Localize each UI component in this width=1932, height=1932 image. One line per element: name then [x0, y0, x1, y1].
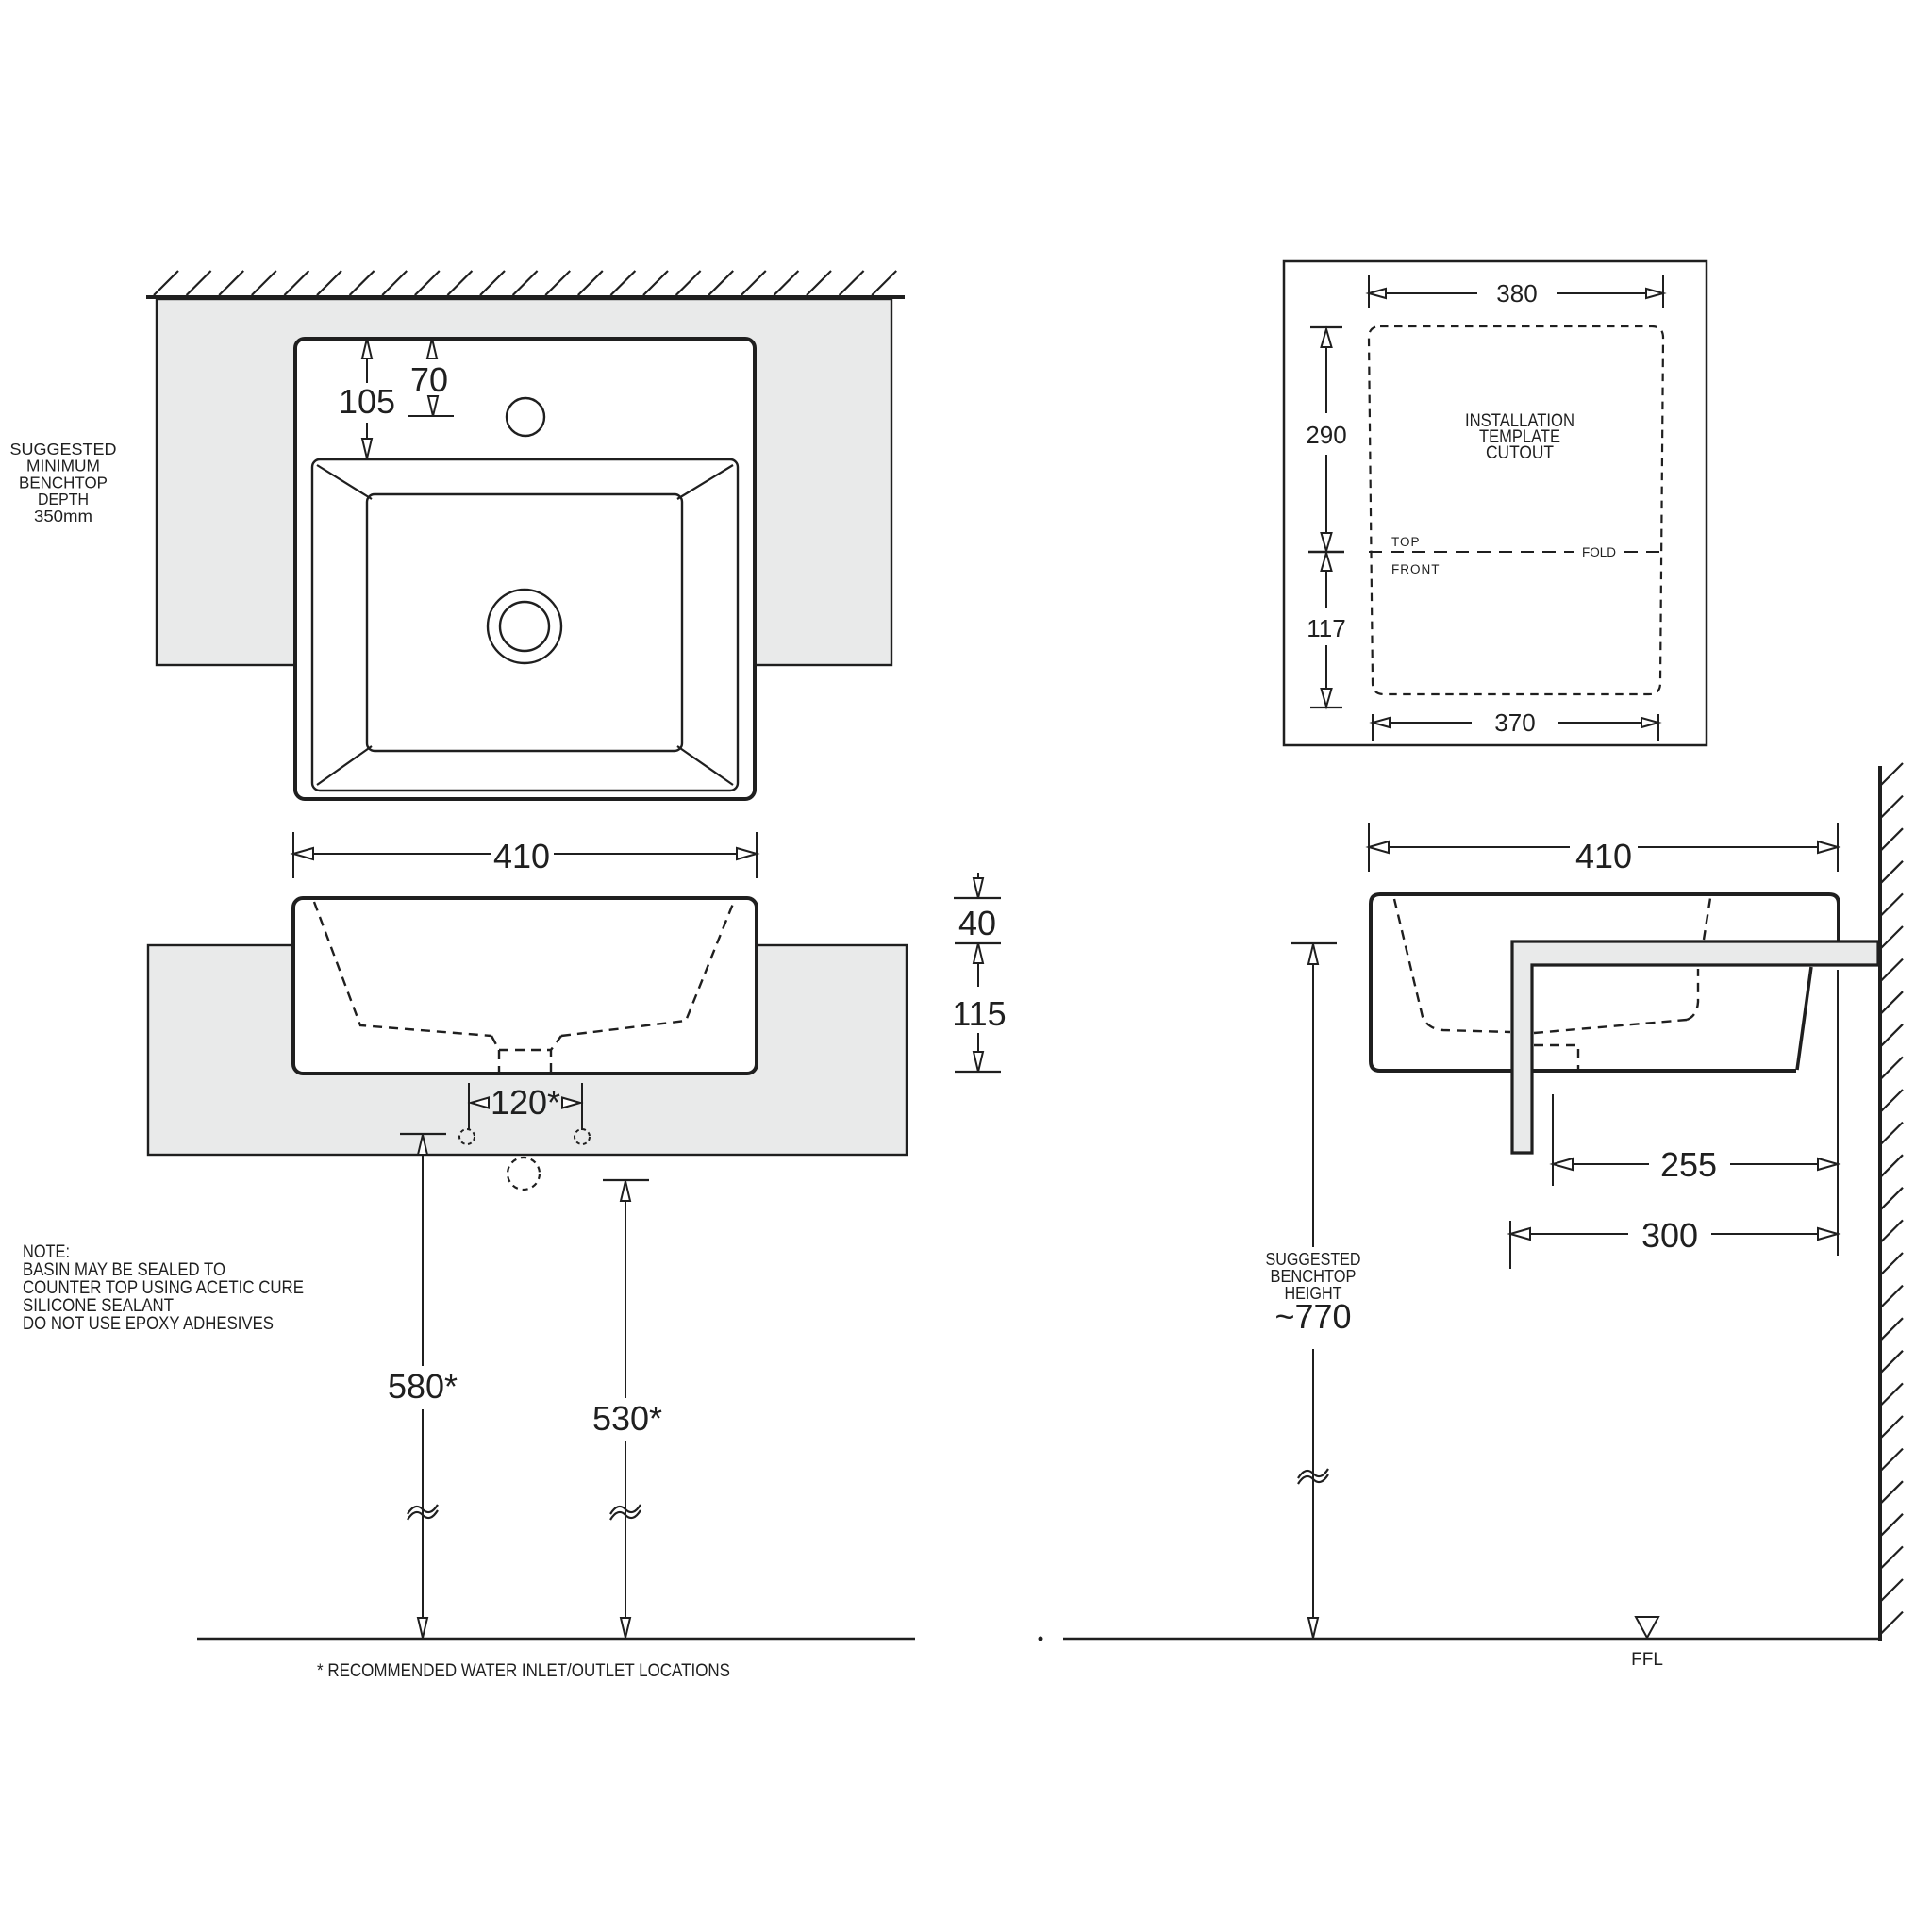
svg-text:380: 380	[1496, 279, 1537, 308]
svg-text:COUNTER TOP USING ACETIC CURE: COUNTER TOP USING ACETIC CURE	[23, 1278, 304, 1298]
svg-text:105: 105	[339, 382, 395, 421]
svg-text:CUTOUT: CUTOUT	[1486, 443, 1554, 463]
svg-text:40: 40	[958, 904, 996, 942]
svg-text:SILICONE SEALANT: SILICONE SEALANT	[23, 1296, 174, 1316]
svg-text:115: 115	[952, 994, 1006, 1033]
svg-text:TOP: TOP	[1391, 535, 1421, 549]
svg-text:* RECOMMENDED WATER INLET/OUTL: * RECOMMENDED WATER INLET/OUTLET LOCATIO…	[317, 1661, 730, 1681]
svg-text:DO NOT USE EPOXY ADHESIVES: DO NOT USE EPOXY ADHESIVES	[23, 1314, 274, 1334]
svg-text:410: 410	[493, 837, 550, 875]
svg-text:SUGGESTED: SUGGESTED	[1266, 1250, 1361, 1269]
svg-text:255: 255	[1660, 1145, 1717, 1184]
svg-text:290: 290	[1306, 421, 1346, 449]
svg-text:410: 410	[1575, 837, 1632, 875]
svg-text:BENCHTOP: BENCHTOP	[1271, 1267, 1357, 1286]
svg-text:FRONT: FRONT	[1391, 562, 1441, 576]
svg-text:120*: 120*	[491, 1083, 560, 1122]
svg-text:350mm: 350mm	[34, 507, 92, 525]
svg-text:FFL: FFL	[1631, 1650, 1663, 1670]
svg-text:370: 370	[1494, 708, 1535, 737]
svg-text:300: 300	[1641, 1216, 1698, 1255]
svg-text:FOLD: FOLD	[1582, 545, 1616, 559]
svg-text:NOTE:: NOTE:	[23, 1242, 70, 1262]
svg-text:580*: 580*	[388, 1367, 458, 1406]
svg-text:~770: ~770	[1274, 1297, 1351, 1336]
svg-text:70: 70	[410, 360, 448, 399]
svg-text:117: 117	[1307, 614, 1345, 642]
svg-text:BASIN MAY BE SEALED TO: BASIN MAY BE SEALED TO	[23, 1260, 225, 1280]
svg-text:530*: 530*	[592, 1399, 662, 1438]
